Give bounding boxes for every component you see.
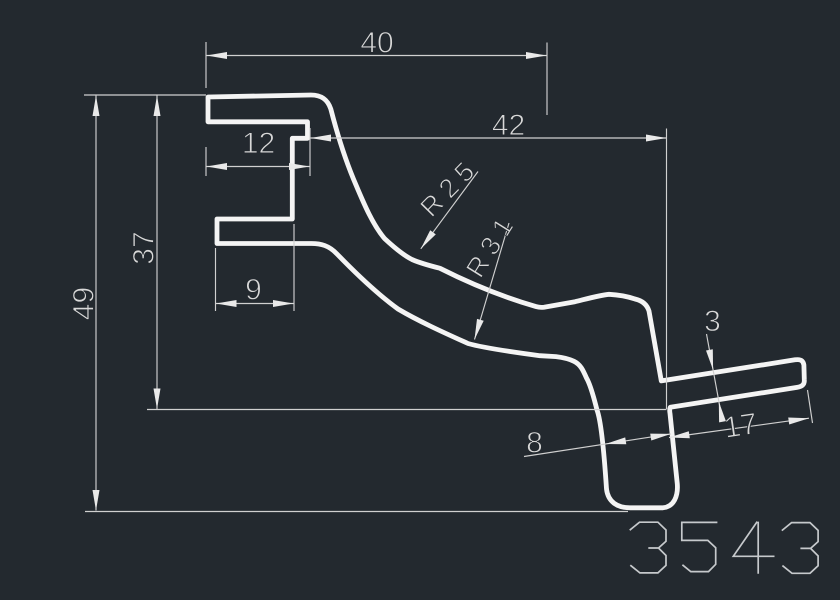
svg-text:9: 9 bbox=[245, 274, 262, 307]
svg-text:3: 3 bbox=[704, 305, 721, 338]
svg-text:40: 40 bbox=[360, 27, 393, 60]
svg-text:37: 37 bbox=[128, 231, 161, 264]
svg-text:42: 42 bbox=[492, 109, 525, 142]
svg-text:49: 49 bbox=[68, 287, 101, 320]
svg-text:17: 17 bbox=[722, 407, 760, 445]
svg-text:12: 12 bbox=[242, 127, 275, 160]
svg-text:8: 8 bbox=[526, 427, 543, 460]
